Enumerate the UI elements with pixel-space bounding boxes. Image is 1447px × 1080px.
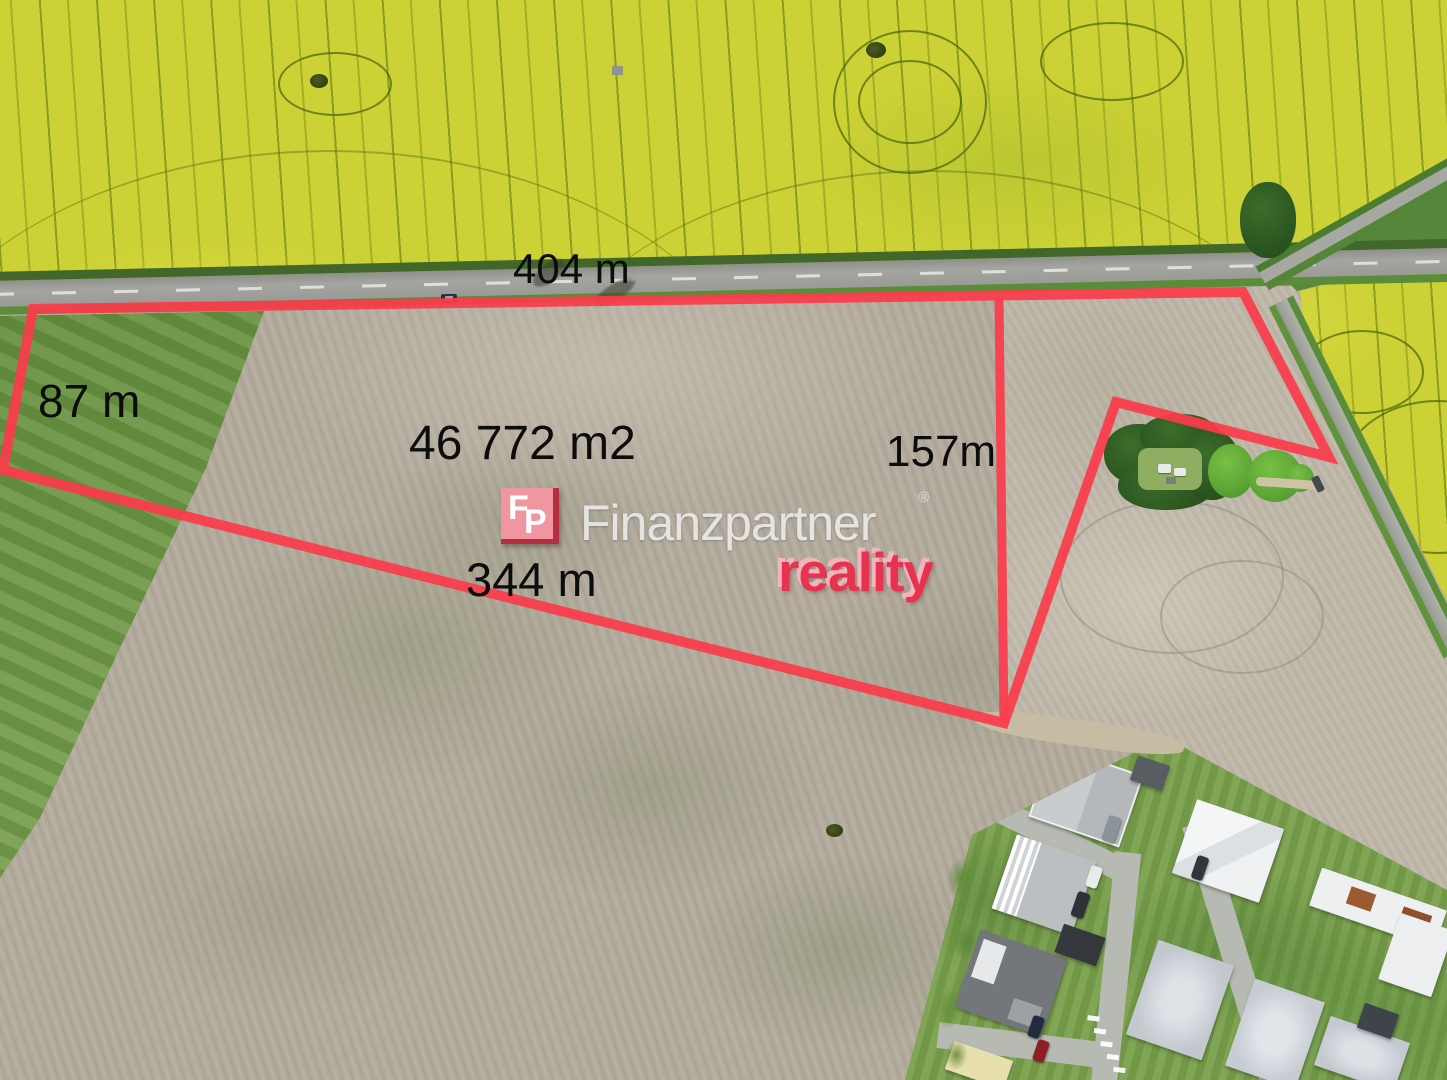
roof-section — [1346, 886, 1376, 911]
caravan — [1158, 464, 1171, 473]
tramline-loop — [1040, 22, 1184, 101]
tree — [1208, 444, 1254, 498]
label-south-length: 344 m — [466, 552, 597, 607]
brand-division: reality — [778, 540, 933, 604]
aerial-photo: 404 m 87 m 46 772 m2 157m 344 m F P Fina… — [0, 0, 1447, 1080]
house-hipped-roof — [1126, 940, 1234, 1061]
label-west-length: 87 m — [38, 374, 140, 428]
brand-logo-badge: F P — [501, 488, 559, 544]
tramline-loop — [858, 60, 962, 144]
field-object — [612, 66, 623, 75]
shed — [1166, 477, 1176, 484]
registered-trademark-icon: ® — [918, 489, 929, 506]
bush — [826, 824, 843, 837]
caravan — [1174, 468, 1186, 476]
house-white — [1172, 799, 1284, 903]
roof-section — [992, 834, 1042, 916]
label-north-length: 404 m — [513, 245, 630, 293]
crosswalk — [1081, 1015, 1138, 1080]
label-east-length: 157m — [886, 427, 996, 477]
logo-letter-p: P — [524, 505, 547, 539]
bush — [310, 74, 328, 88]
field-track-arc — [1160, 560, 1324, 674]
car-on-road — [441, 294, 457, 303]
tree — [1240, 182, 1296, 258]
label-plot-area: 46 772 m2 — [409, 416, 636, 471]
bush — [866, 42, 886, 58]
car-roof — [445, 296, 453, 301]
tramline-loop — [278, 52, 392, 116]
